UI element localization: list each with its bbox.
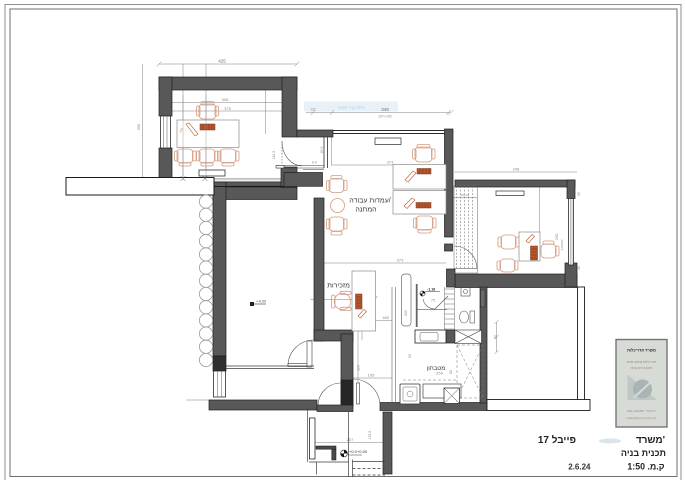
svg-text:45+43: 45+43 xyxy=(461,193,470,197)
svg-text:375: 375 xyxy=(224,106,231,111)
svg-text:מזכירות: מזכירות xyxy=(327,283,350,290)
svg-text:עמדות עבודה/: עמדות עבודה/ xyxy=(349,198,391,205)
svg-text:-1.18: -1.18 xyxy=(427,288,435,292)
svg-text:225: 225 xyxy=(404,310,408,316)
svg-text:220: 220 xyxy=(357,365,361,371)
svg-text:תכנון ערים ובניה: תכנון ערים ובניה xyxy=(631,366,653,370)
svg-text:425: 425 xyxy=(218,59,226,64)
svg-text:+0.0+0.00: +0.0+0.00 xyxy=(349,449,368,454)
svg-text:130/250: 130/250 xyxy=(560,239,564,250)
svg-text:29.5: 29.5 xyxy=(320,147,324,154)
svg-text:75: 75 xyxy=(431,299,435,303)
svg-text:82: 82 xyxy=(449,370,453,374)
svg-text:המתנה: המתנה xyxy=(355,207,376,214)
svg-text:197+152: 197+152 xyxy=(378,115,392,119)
svg-text:305: 305 xyxy=(136,123,141,130)
svg-text:181.5: 181.5 xyxy=(272,151,276,160)
svg-text:257: 257 xyxy=(347,437,354,442)
svg-text:45: 45 xyxy=(577,266,581,270)
svg-text:349: 349 xyxy=(381,107,389,112)
svg-text:193.5: 193.5 xyxy=(368,431,372,440)
svg-text:35: 35 xyxy=(577,192,581,196)
svg-text:40: 40 xyxy=(494,335,498,339)
svg-text:משרד אדריכלות: משרד אדריכלות xyxy=(627,348,656,353)
svg-text:250: 250 xyxy=(554,233,559,240)
svg-text:ק.מ. 1:50: ק.מ. 1:50 xyxy=(627,462,664,472)
svg-text:הזזת קיר פנימי: הזזת קיר פנימי xyxy=(337,105,364,110)
svg-text:308: 308 xyxy=(222,97,229,102)
svg-text:373: 373 xyxy=(387,160,394,165)
svg-text:studio@arch-mail.com: studio@arch-mail.com xyxy=(627,416,657,420)
svg-text:תכנית בניה: תכנית בניה xyxy=(621,448,666,458)
svg-text:אדריכלות ועיצוב פנים: אדריכלות ועיצוב פנים xyxy=(627,360,655,364)
svg-text:195: 195 xyxy=(368,373,375,378)
svg-text:+-0.00: +-0.00 xyxy=(256,300,266,304)
svg-text:188: 188 xyxy=(382,315,389,320)
svg-text:פייבל 17: פייבל 17 xyxy=(538,434,576,446)
svg-text:373: 373 xyxy=(397,258,404,263)
svg-text:6.4: 6.4 xyxy=(312,161,317,165)
svg-text:מטבחון: מטבחון xyxy=(427,366,446,372)
svg-text:92: 92 xyxy=(408,354,412,358)
svg-text:משרד': משרד' xyxy=(636,435,665,446)
svg-text:248: 248 xyxy=(513,167,520,172)
svg-text:054-1234567 ,רח צהל: 054-1234567 ,רח צהל xyxy=(627,409,656,413)
svg-text:2.6.24: 2.6.24 xyxy=(568,463,591,472)
svg-text:127: 127 xyxy=(310,108,316,112)
